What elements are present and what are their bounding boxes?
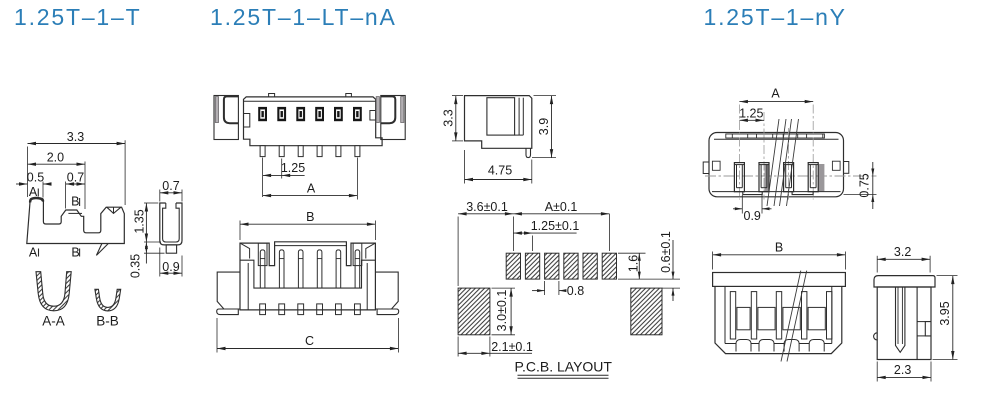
svg-text:A: A [307,181,316,195]
svg-text:1.25T–1–nY: 1.25T–1–nY [704,4,847,30]
svg-text:B: B [775,241,783,255]
svg-text:1.25T–1–LT–nA: 1.25T–1–LT–nA [210,4,397,30]
svg-text:1.35: 1.35 [133,209,147,233]
svg-text:B: B [71,246,79,260]
svg-text:1.25: 1.25 [281,161,305,175]
svg-text:0.7: 0.7 [162,179,179,193]
svg-text:P.C.B. LAYOUT: P.C.B. LAYOUT [514,359,612,375]
svg-text:1.25: 1.25 [739,106,763,120]
svg-text:0.35: 0.35 [128,254,142,278]
svg-text:0.75: 0.75 [858,173,872,197]
svg-text:A: A [29,185,38,199]
svg-text:3.9: 3.9 [537,118,551,135]
svg-text:3.0±0.1: 3.0±0.1 [495,290,509,332]
svg-text:3.6±0.1: 3.6±0.1 [466,200,508,214]
svg-text:3.3: 3.3 [67,130,84,144]
svg-text:3.2: 3.2 [894,245,911,259]
svg-text:0.9: 0.9 [744,209,761,223]
svg-text:B: B [306,210,314,224]
svg-text:0.5: 0.5 [27,170,44,184]
svg-text:2.3: 2.3 [894,363,911,377]
svg-text:B: B [71,195,79,209]
svg-text:A: A [771,86,780,100]
svg-text:1.25±0.1: 1.25±0.1 [531,219,580,233]
svg-text:B-B: B-B [96,314,119,329]
svg-text:3.3: 3.3 [442,109,456,126]
svg-text:1.6: 1.6 [627,255,641,272]
svg-text:A±0.1: A±0.1 [545,200,578,214]
svg-text:0.8: 0.8 [567,284,584,298]
svg-text:2.0: 2.0 [47,151,64,165]
svg-text:0.7: 0.7 [67,170,84,184]
svg-text:0.9: 0.9 [162,260,179,274]
svg-text:A-A: A-A [42,314,65,329]
svg-text:3.95: 3.95 [938,301,952,325]
svg-text:A: A [29,246,38,260]
svg-text:2.1±0.1: 2.1±0.1 [491,340,533,354]
svg-text:0.6±0.1: 0.6±0.1 [659,231,673,273]
svg-text:1.25T–1–T: 1.25T–1–T [14,4,141,30]
svg-text:4.75: 4.75 [488,164,512,178]
svg-text:C: C [305,334,314,348]
